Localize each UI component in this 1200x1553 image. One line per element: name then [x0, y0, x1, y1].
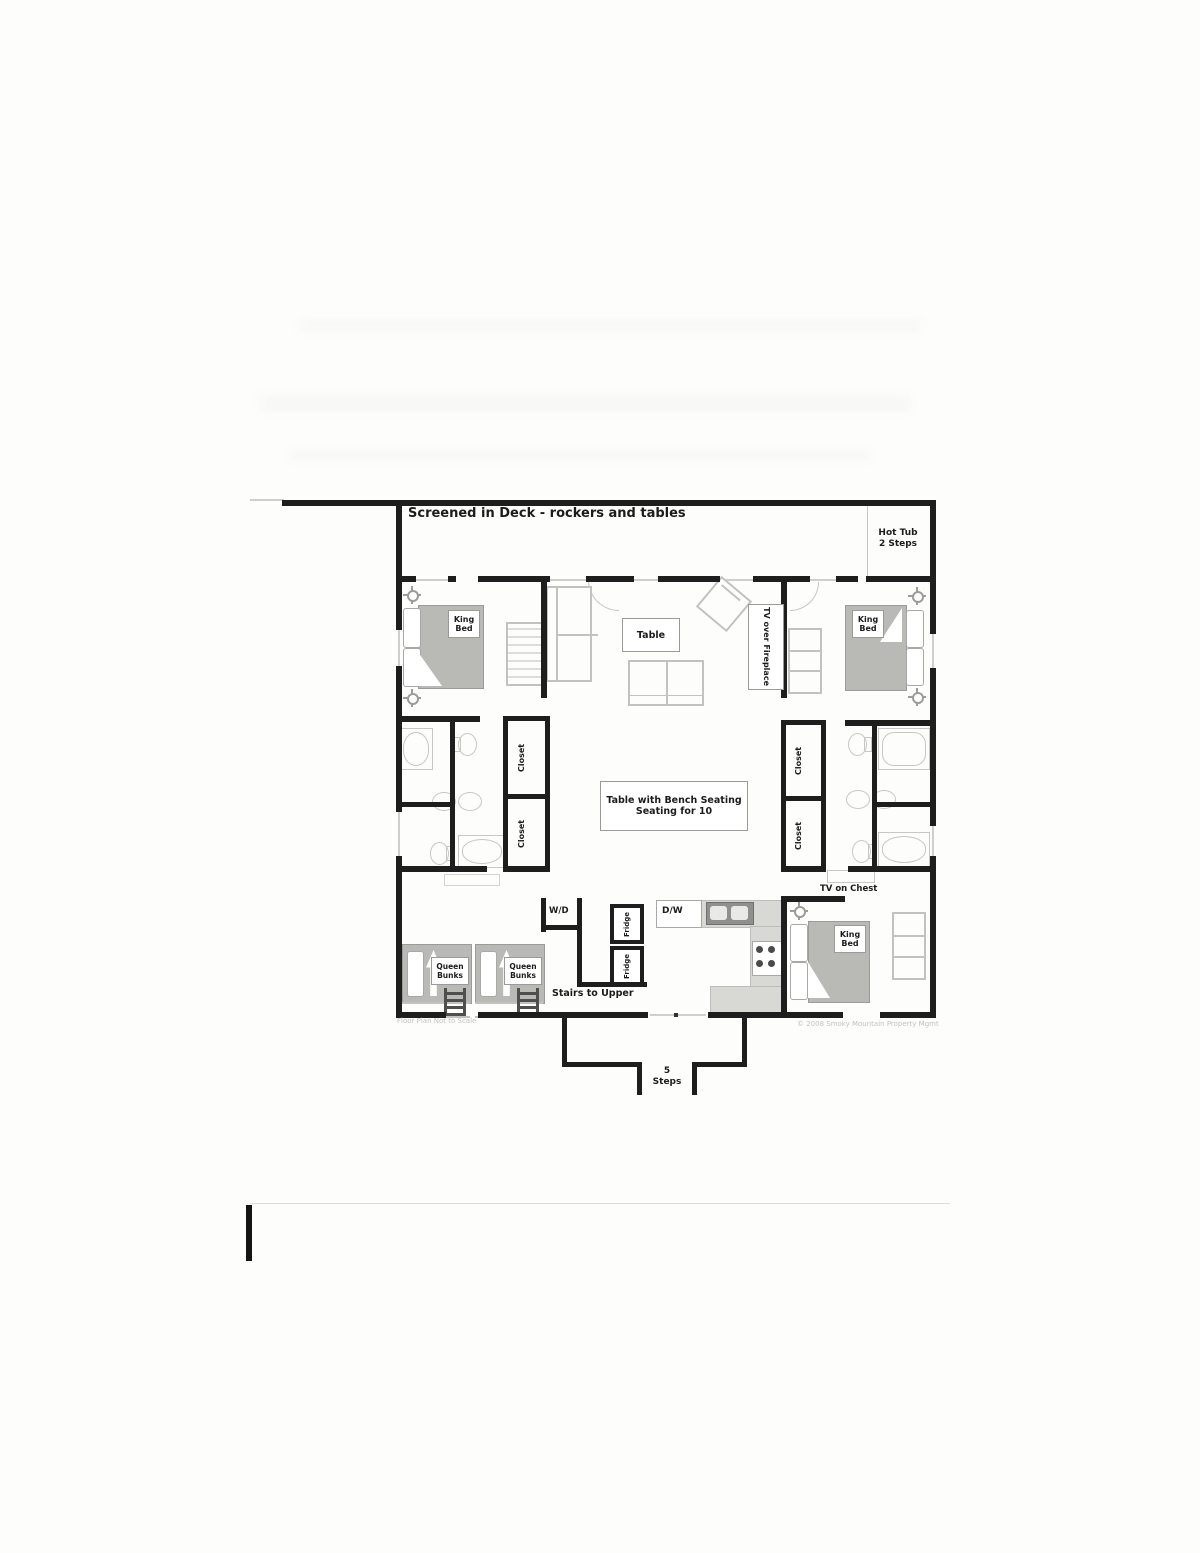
wall: [448, 576, 456, 582]
wall: [848, 866, 936, 872]
footnote-scale: Floor Plan Not to Scale: [397, 1017, 476, 1025]
fridge: Fridge: [610, 904, 644, 944]
door-line: [416, 579, 448, 581]
wall: [877, 802, 936, 807]
scan-streak: [290, 450, 870, 460]
wall: [396, 576, 416, 582]
hot-tub-label: Hot Tub 2 Steps: [868, 528, 928, 550]
scan-artifact-bar: [246, 1205, 252, 1261]
dresser: [892, 912, 926, 980]
bathtub: [458, 835, 506, 868]
wall: [872, 725, 877, 868]
pillow: [906, 648, 924, 686]
wall: [836, 576, 858, 582]
dining-label: Table with Bench Seating Seating for 10: [600, 781, 748, 831]
wall: [396, 866, 487, 872]
bathtub: [878, 832, 930, 867]
wall: [658, 576, 720, 582]
footnote-copyright: © 2008 Smoky Mountain Property Mgmt: [797, 1020, 939, 1028]
dresser: [788, 628, 822, 694]
ceiling-fan-icon: [403, 689, 421, 707]
bunk-ladder: [444, 988, 466, 1016]
pillow: [790, 962, 808, 1000]
wall: [396, 802, 454, 807]
entry-steps-label: 5 Steps: [645, 1066, 689, 1088]
wall: [396, 500, 402, 630]
closets: Closet Closet: [503, 716, 550, 872]
wall: [541, 576, 547, 698]
dishwasher-label: D/W: [662, 906, 683, 917]
stove-burner: [756, 960, 763, 967]
wall: [478, 576, 550, 582]
floor-plan-page: Screened in Deck - rockers and tables Ho…: [0, 0, 1200, 1553]
sofa: [628, 660, 704, 706]
pillow: [403, 608, 421, 648]
closet-label: Closet: [794, 732, 804, 789]
bathtub: [399, 728, 433, 770]
wall: [546, 925, 579, 930]
pillow: [906, 610, 924, 648]
tv-over-fireplace-label: TV over Fireplace: [748, 604, 784, 690]
window-line: [932, 826, 934, 856]
door-line: [932, 634, 934, 668]
washer-dryer-label: W/D: [549, 906, 569, 916]
door-line: [550, 579, 586, 581]
queen-bunks-label: Queen Bunks: [431, 957, 469, 985]
door-swing-arc: [790, 582, 819, 611]
wall: [396, 666, 402, 812]
wall: [637, 1062, 642, 1095]
deck-title: Screened in Deck - rockers and tables: [408, 506, 686, 522]
fridge: Fridge: [610, 946, 644, 986]
king-bed-label: King Bed: [834, 925, 866, 953]
entry-door-line: [650, 1014, 706, 1016]
stairs-label: Stairs to Upper: [552, 988, 634, 999]
stove-burner: [768, 960, 775, 967]
wall: [708, 1012, 843, 1018]
wall: [742, 1012, 747, 1067]
closet-label: Closet: [794, 807, 804, 864]
pillow: [790, 924, 808, 962]
wall: [787, 896, 845, 902]
page-fold-line: [250, 1203, 950, 1204]
sink: [846, 790, 870, 809]
stove-burner: [756, 946, 763, 953]
scan-edge-line: [250, 499, 284, 501]
kitchen-sink: [706, 902, 754, 925]
wall: [450, 721, 455, 868]
chaise-chair: [506, 622, 544, 686]
bathtub: [878, 728, 930, 770]
wall: [577, 898, 582, 987]
wall: [396, 856, 402, 1018]
wall: [866, 576, 936, 582]
wall: [562, 1012, 567, 1067]
wall: [586, 576, 634, 582]
wall: [930, 500, 936, 634]
pillow: [407, 951, 424, 997]
wall: [562, 1062, 642, 1067]
king-bed-label: King Bed: [852, 610, 884, 638]
closets: Closet Closet: [781, 720, 826, 872]
door-hinge-dot: [674, 1013, 678, 1017]
wall: [781, 866, 823, 872]
scan-streak: [300, 320, 920, 332]
ceiling-fan-icon: [790, 902, 808, 920]
wall: [692, 1062, 697, 1095]
closet-label: Closet: [517, 729, 527, 787]
door-swing-arc: [588, 580, 619, 611]
door-line: [634, 579, 658, 581]
wall: [508, 866, 550, 872]
toilet-tank: [864, 737, 872, 752]
wall: [781, 896, 787, 1017]
door-line: [810, 579, 836, 581]
queen-bunks-label: Queen Bunks: [504, 957, 542, 985]
fridge-label: Fridge: [623, 912, 631, 937]
chest: [444, 874, 500, 886]
ceiling-fan-icon: [403, 586, 421, 604]
sink: [458, 792, 482, 811]
sofa: [546, 586, 592, 682]
tv-on-chest-label: TV on Chest: [820, 884, 877, 894]
pillow: [480, 951, 497, 997]
window-line: [398, 812, 400, 856]
fridge-label: Fridge: [623, 954, 631, 979]
king-bed-label: King Bed: [448, 610, 480, 638]
table-label: Table: [622, 618, 680, 652]
closet-label: Closet: [517, 805, 527, 863]
wall: [880, 1012, 936, 1018]
wall: [396, 716, 480, 722]
wall: [692, 1062, 747, 1067]
wall: [845, 720, 936, 726]
wall: [930, 856, 936, 1018]
armchair: [696, 576, 752, 632]
ceiling-fan-icon: [908, 688, 926, 706]
scan-streak: [260, 395, 910, 411]
door-line: [398, 630, 400, 666]
stove-burner: [768, 946, 775, 953]
ceiling-fan-icon: [908, 587, 926, 605]
wall: [577, 982, 647, 987]
